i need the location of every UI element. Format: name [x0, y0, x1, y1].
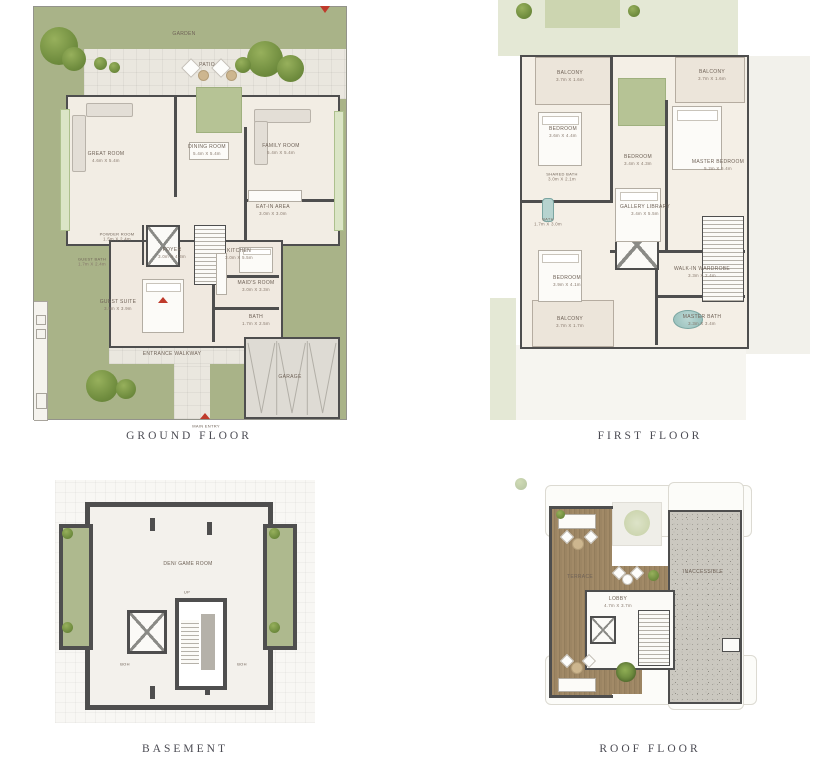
room-label-powder-room: POWDER ROOM1.5m X 2.4m	[100, 232, 135, 243]
entry-marker-icon	[158, 297, 168, 303]
bush	[86, 370, 118, 402]
room-name: MASTER BEDROOM	[692, 159, 744, 166]
sofa	[86, 103, 133, 117]
lightwell-plant	[62, 622, 73, 633]
room-label-bath: BATH1.7m X 3.0m	[534, 217, 562, 228]
faint-tree	[624, 510, 650, 536]
room-label-eat-in-area: EAT-IN AREA3.0m X 3.0m	[256, 204, 290, 216]
room-label-bedroom: BEDROOM3.9m X 4.1m	[553, 275, 581, 287]
stairs	[181, 620, 199, 664]
room-dims: 3.7m X 1.6m	[698, 75, 726, 81]
bush	[277, 55, 304, 82]
interior-wall	[174, 97, 177, 197]
interior-wall	[610, 55, 613, 203]
room-label-maids-room: MAID'S ROOM3.0m X 3.3m	[237, 280, 274, 292]
room-dims: 3.7m X 1.7m	[556, 322, 584, 328]
room-label-boh: BOH	[120, 661, 130, 666]
interior-wall	[520, 200, 612, 203]
room-name: DINING ROOM	[188, 144, 226, 151]
room-dims: 1.7m X 3.0m	[534, 222, 562, 228]
bush	[62, 47, 86, 71]
main-entry-label: MAIN ENTRY	[192, 423, 220, 428]
room-name: BALCONY	[698, 69, 726, 76]
stairs	[638, 610, 670, 666]
lightwell	[263, 524, 297, 650]
terrace-wall	[549, 695, 613, 698]
room-dims: 3.0m X 4.3m	[158, 253, 186, 259]
room-name: WALK-IN WARDROBE	[674, 266, 730, 273]
main-entry-marker-icon	[200, 413, 210, 419]
terrace-tree	[616, 662, 636, 682]
floorplan-sheet: GARDEN PATIO GREAT ROOM4.6m X 5.4m DININ…	[0, 0, 817, 772]
stair-landing	[201, 614, 215, 670]
room-label-family-room: FAMILY ROOM5.4m X 5.4m	[262, 143, 300, 155]
bed	[538, 112, 582, 166]
room-dims: 3.4m X 4.3m	[624, 160, 652, 166]
room-label-bedroom: BEDROOM3.4m X 4.3m	[624, 154, 652, 166]
room-name: BOH	[237, 661, 247, 666]
bush	[516, 3, 532, 19]
lightwell-plant	[269, 528, 280, 539]
site-marker-icon	[320, 6, 330, 13]
room-name: BEDROOM	[553, 275, 581, 282]
room-label-bath: BATH1.7m X 2.5m	[242, 314, 270, 326]
room-dims: 3.0m X 3.3m	[237, 286, 274, 292]
basement-plan: DEN/ GAME ROOM BOH BOH UP	[55, 480, 315, 723]
room-name: GALLERY LIBRARY	[620, 204, 670, 211]
room-dims: 3.0m X 3.0m	[256, 210, 290, 216]
elevator	[127, 610, 167, 654]
room-label-kitchen: KITCHEN3.0m X 5.5m	[225, 248, 253, 260]
interior-wall	[665, 100, 668, 252]
room-name: MAID'S ROOM	[237, 280, 274, 287]
label-text: UP	[184, 589, 190, 594]
room-label-balcony: BALCONY3.7m X 1.6m	[698, 69, 726, 81]
room-dims: 3.9m X 4.1m	[553, 281, 581, 287]
room-dims: 3.4m X 5.5m	[620, 210, 670, 216]
inaccessible-label: INACCESSIBLE	[683, 569, 723, 576]
ground-floor-plan: GARDEN PATIO GREAT ROOM4.6m X 5.4m DININ…	[33, 6, 347, 420]
room-dims: 3.0m X 5.5m	[225, 254, 253, 260]
room-label-balcony: BALCONY3.7m X 1.7m	[556, 316, 584, 328]
room-name: DEN/ GAME ROOM	[163, 561, 212, 568]
terrace-plant	[556, 510, 565, 519]
room-label-shared-bath: SHARED BATH3.0m X 2.1m	[546, 172, 577, 183]
interior-wall	[142, 225, 144, 265]
terrace-table	[622, 574, 633, 585]
room-name: BOH	[120, 661, 130, 666]
room-dims: 5.2m X 5.4m	[692, 165, 744, 171]
gravel-roof	[668, 510, 742, 704]
room-dims: 1.7m X 2.5m	[242, 320, 270, 326]
label-text: GARAGE	[278, 374, 301, 381]
patio-label: PATIO	[199, 62, 215, 69]
roof-hatch	[722, 638, 740, 652]
garden-below	[545, 0, 620, 28]
room-name: GREAT ROOM	[88, 151, 125, 158]
roof-floor-plan: TERRACE LOBBY4.7m X 3.7m INACCESSIBLE	[500, 470, 800, 720]
garage-label: GARAGE	[278, 374, 301, 381]
room-label-guest-bath: GUEST BATH1.7m X 2.4m	[78, 257, 106, 268]
room-dims: 4.7m X 3.7m	[604, 602, 632, 608]
pier	[150, 518, 155, 531]
room-label-boh: BOH	[237, 661, 247, 666]
room-label-master-bedroom: MASTER BEDROOM5.2m X 5.4m	[692, 159, 744, 171]
room-label-master-bath: MASTER BATH3.3m X 3.4m	[683, 314, 722, 326]
room-name: GUEST SUITE	[100, 299, 137, 306]
room-dims: 3.3m X 2.4m	[674, 272, 730, 278]
room-label-foyer: FOYER3.0m X 4.3m	[158, 247, 186, 259]
first-floor-plan: BALCONY3.7m X 1.6m BEDROOM3.6m X 4.4m SH…	[490, 0, 810, 430]
terrace-table	[571, 662, 583, 674]
room-label-gallery-library: GALLERY LIBRARY3.4m X 5.5m	[620, 204, 670, 216]
room-label-guest-suite: GUEST SUITE3.9m X 3.9m	[100, 299, 137, 311]
room-name: EAT-IN AREA	[256, 204, 290, 211]
lightwell-plant	[62, 528, 73, 539]
stair-core	[175, 598, 227, 690]
room-dims: 5.4m X 5.4m	[262, 149, 300, 155]
room-dims: 3.7m X 1.6m	[556, 76, 584, 82]
room-label-balcony: BALCONY3.7m X 1.6m	[556, 70, 584, 82]
label-text: PATIO	[199, 62, 215, 69]
terrace-wall	[549, 506, 552, 698]
lobby-label: LOBBY4.7m X 3.7m	[604, 596, 632, 608]
room-dims: 3.6m X 4.4m	[549, 132, 577, 138]
room-dims: 4.6m X 5.4m	[88, 157, 125, 163]
side-yard	[742, 56, 810, 354]
room-dims: 1.7m X 2.4m	[78, 262, 106, 268]
bush	[116, 379, 136, 399]
caption-ground-floor: GROUND FLOOR	[33, 430, 345, 442]
terrace-wall	[549, 506, 613, 509]
room-name: INACCESSIBLE	[683, 569, 723, 576]
eat-in-island	[248, 190, 302, 202]
interior-wall	[244, 127, 247, 240]
label-text: GARDEN	[172, 31, 195, 38]
room-dims: 5.4m X 5.4m	[188, 150, 226, 156]
room-label-great-room: GREAT ROOM4.6m X 5.4m	[88, 151, 125, 163]
room-dims: 3.0m X 2.1m	[546, 177, 577, 183]
room-name: BEDROOM	[549, 126, 577, 133]
room-name: BALCONY	[556, 316, 584, 323]
apron	[516, 345, 746, 420]
patio-table	[226, 70, 237, 81]
elevator	[590, 616, 616, 644]
room-label-walk-in-wardrobe: WALK-IN WARDROBE3.3m X 2.4m	[674, 266, 730, 278]
stairs	[702, 216, 744, 302]
terrace-table	[572, 538, 584, 550]
garden-below	[490, 298, 516, 420]
guest-bed	[142, 279, 184, 333]
caption-basement: BASEMENT	[55, 743, 315, 755]
bush	[628, 5, 640, 17]
room-name: TERRACE	[567, 574, 593, 581]
room-dims: 3.3m X 3.4m	[683, 320, 722, 326]
up-label: UP	[184, 589, 190, 594]
label-text: ENTRANCE WALKWAY	[143, 351, 202, 358]
room-name: MASTER BATH	[683, 314, 722, 321]
room-name: BEDROOM	[624, 154, 652, 161]
patio-table	[198, 70, 209, 81]
terrace-label: TERRACE	[567, 574, 593, 581]
bush	[109, 62, 120, 73]
terrace-plant	[648, 570, 659, 581]
lounger	[558, 678, 596, 692]
pier	[207, 522, 212, 535]
room-label-bedroom: BEDROOM3.6m X 4.4m	[549, 126, 577, 138]
courtyard	[196, 87, 242, 133]
room-dims: 3.9m X 3.9m	[100, 305, 137, 311]
pier	[150, 686, 155, 699]
garden-label: GARDEN	[172, 31, 195, 38]
room-label-den-game-room: DEN/ GAME ROOM	[163, 561, 212, 568]
entry-path	[174, 364, 210, 419]
room-name: BALCONY	[556, 70, 584, 77]
room-label-dining-room: DINING ROOM5.4m X 5.4m	[188, 144, 226, 156]
courtyard-void	[618, 78, 666, 126]
room-name: KITCHEN	[225, 248, 253, 255]
window-strip	[60, 109, 70, 231]
caption-roof-floor: ROOF FLOOR	[500, 743, 800, 755]
bush	[235, 57, 251, 73]
entrance-walkway-label: ENTRANCE WALKWAY	[143, 351, 202, 358]
room-name: FAMILY ROOM	[262, 143, 300, 150]
caption-first-floor: FIRST FLOOR	[490, 430, 810, 442]
window-strip	[334, 111, 344, 231]
lightwell-plant	[269, 622, 280, 633]
room-dims: 1.5m X 2.4m	[100, 237, 135, 243]
bush	[94, 57, 107, 70]
faint-bush	[515, 478, 527, 490]
interior-wall	[212, 307, 279, 310]
sofa	[72, 115, 86, 172]
label-text: MAIN ENTRY	[192, 423, 220, 428]
